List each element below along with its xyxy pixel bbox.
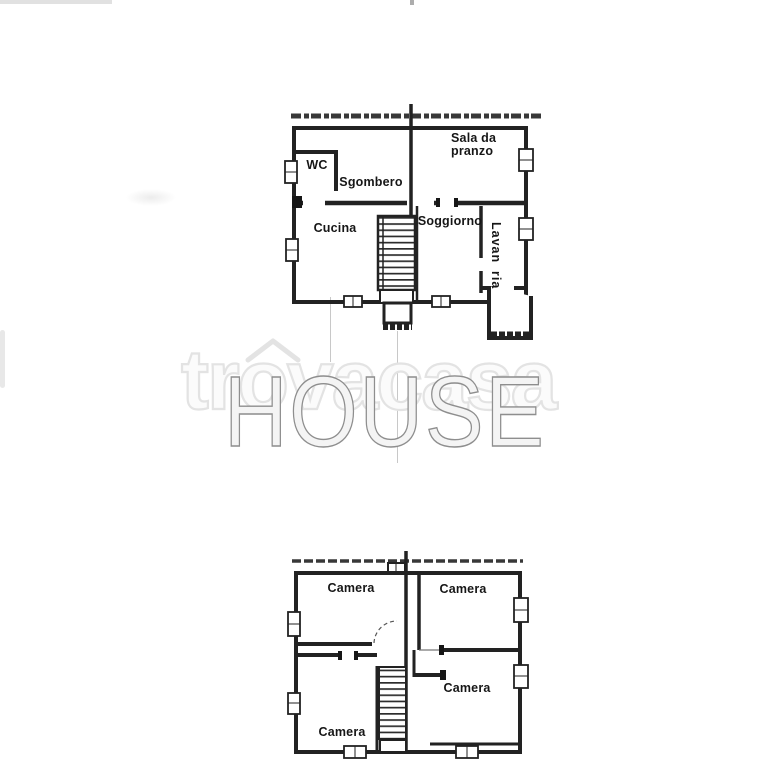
door-jamb: [454, 198, 458, 207]
scan-artifact-left-smudge: [0, 330, 5, 388]
door-jamb: [436, 198, 440, 207]
lower-floor-plan: [268, 540, 562, 768]
scanned-floorplan-page: trovacasa HOUSE WC Sgombero Sala da pran…: [0, 0, 765, 768]
door-swing-arc: [374, 621, 397, 643]
watermark-text: HOUSE: [224, 356, 546, 468]
entry-step: [384, 303, 411, 323]
scan-artifact-top-tick: [410, 0, 414, 5]
room-label-cucina: Cucina: [314, 221, 357, 235]
lower-plan-staircase: [377, 666, 406, 752]
room-label-camera-top-left: Camera: [327, 581, 374, 595]
scan-artifact-smudge: [126, 189, 176, 206]
room-label-lavanderia-suffix: ria: [489, 271, 503, 289]
upper-floor-plan: [268, 95, 562, 355]
stair-landing: [380, 740, 406, 752]
room-label-lavanderia: Lavan: [489, 222, 503, 263]
stair-landing: [380, 290, 413, 303]
upper-plan-staircase: [378, 216, 415, 327]
door-jamb: [439, 645, 444, 655]
scan-artifact-top-band: [0, 0, 112, 4]
wall-junction-mark: [292, 196, 302, 208]
room-label-soggiorno: Soggiorno: [418, 214, 482, 228]
door-jamb: [440, 670, 446, 680]
room-label-wc: WC: [306, 158, 327, 172]
door-jamb: [338, 651, 342, 660]
room-label-camera-middle-right: Camera: [443, 681, 490, 695]
room-label-camera-bottom-left: Camera: [318, 725, 365, 739]
room-label-sala-da-pranzo: Sala da pranzo: [451, 132, 515, 157]
door-opening: [440, 198, 454, 208]
watermark-house: HOUSE: [224, 362, 546, 462]
door-jamb: [354, 651, 358, 660]
room-label-sgombero: Sgombero: [339, 175, 402, 189]
stair-flight: [379, 667, 406, 739]
room-label-camera-top-right: Camera: [439, 582, 486, 596]
